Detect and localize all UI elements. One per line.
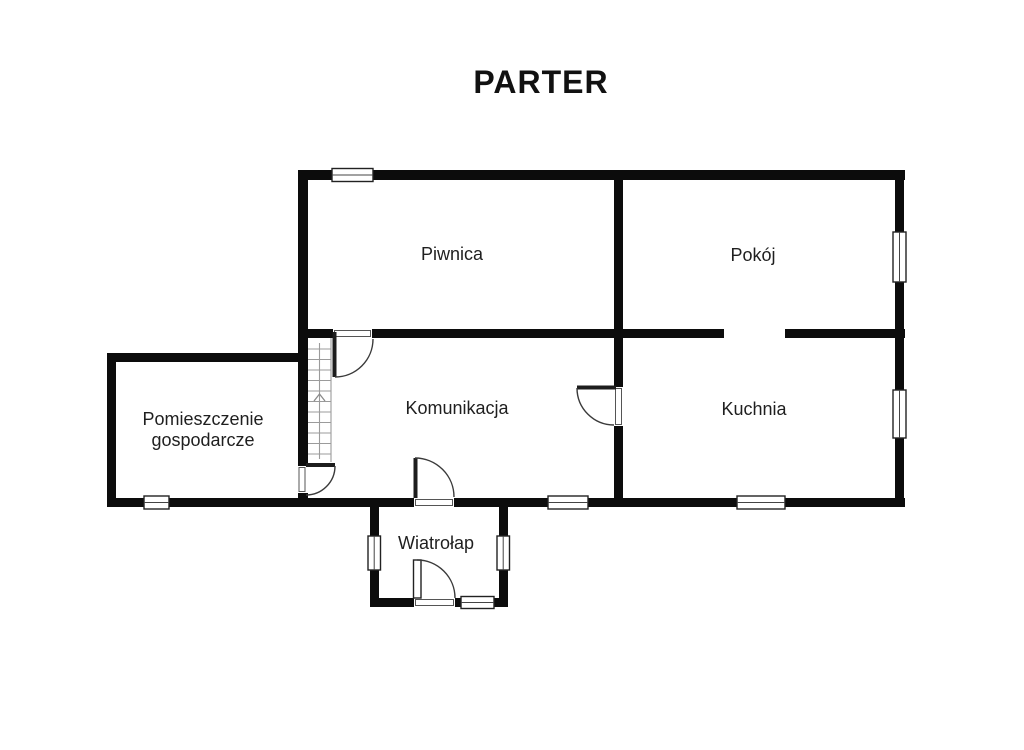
door-utility-room <box>306 465 335 495</box>
window-wiatrolap-right <box>497 536 510 570</box>
window-kuchnia-bottom <box>737 496 785 509</box>
opening-pokoj-kuchnia-passage <box>724 328 785 339</box>
door-vestibule-inner <box>415 458 454 498</box>
room-label-wiatrolap: Wiatrołap <box>398 533 474 553</box>
door-frame-piwnica <box>335 331 371 337</box>
room-label-pokoj: Pokój <box>730 245 775 265</box>
wall-top <box>298 170 905 180</box>
window-piwnica-top <box>332 169 373 182</box>
room-label-pomieszczenie-gospodarcze-line1: Pomieszczenie <box>142 409 263 429</box>
room-label-piwnica: Piwnica <box>421 244 484 264</box>
wall-right <box>895 170 904 507</box>
windows <box>144 169 906 609</box>
window-wiatrolap-left <box>368 536 381 570</box>
door-frame-kuchnia <box>616 389 622 425</box>
wall-divider-horizontal <box>298 329 905 338</box>
door-frame-entry <box>416 600 454 606</box>
window-kuchnia-right <box>893 390 906 438</box>
wall-left-main <box>298 170 308 507</box>
wall-divider-vertical <box>614 170 623 507</box>
window-komunikacja-bottom <box>548 496 588 509</box>
window-utility-bottom <box>144 496 169 509</box>
window-wiatrolap-bottom <box>461 597 494 609</box>
door-frame-utility <box>299 468 305 492</box>
door-entry <box>414 560 456 598</box>
stairs <box>308 338 331 462</box>
doors <box>306 332 616 598</box>
door-kuchnia <box>577 388 616 426</box>
room-label-pomieszczenie-gospodarcze-line2: gospodarcze <box>151 430 254 450</box>
wall-utility-top <box>107 353 308 362</box>
wall-utility-left <box>107 353 116 507</box>
window-pokoj-right <box>893 232 906 282</box>
room-label-komunikacja: Komunikacja <box>405 398 509 418</box>
floor-plan: Piwnica Pokój Pomieszczenie gospodarcze … <box>0 0 1024 750</box>
floor-plan-page: PARTER <box>0 0 1024 750</box>
door-frame-vestibule-inner <box>416 500 453 506</box>
room-label-kuchnia: Kuchnia <box>721 399 787 419</box>
